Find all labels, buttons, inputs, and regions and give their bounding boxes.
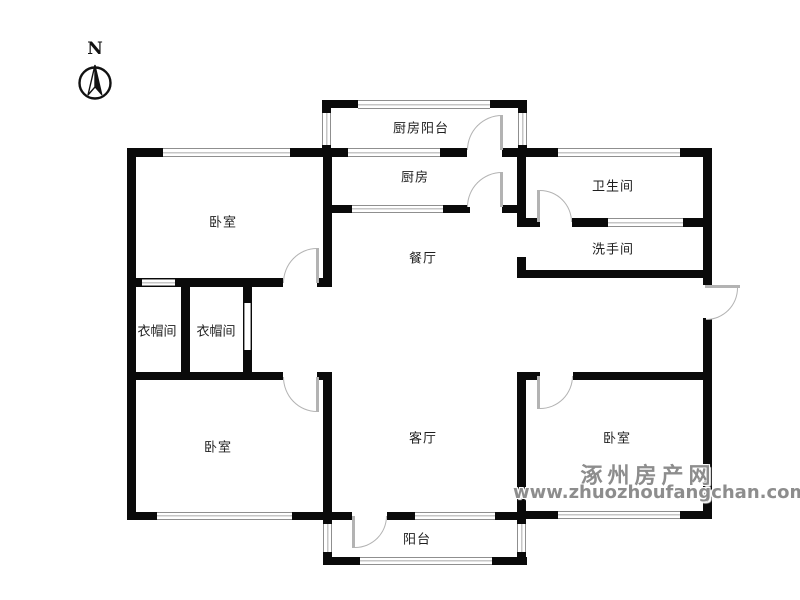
- room-label-dining: 餐厅: [409, 248, 437, 267]
- wall: [572, 218, 608, 227]
- window: [517, 524, 526, 552]
- window: [348, 148, 440, 157]
- window: [352, 205, 443, 213]
- door-arc: [283, 248, 317, 283]
- floor-plan: N: [0, 0, 800, 600]
- wall: [517, 148, 526, 227]
- door-arc: [540, 376, 573, 409]
- window: [157, 512, 292, 520]
- room-label-bedroom-bottom-right: 卧室: [603, 428, 631, 447]
- window: [415, 512, 495, 520]
- wall: [517, 257, 526, 278]
- window: [358, 100, 490, 109]
- window: [360, 557, 492, 565]
- wall: [703, 148, 712, 285]
- wall: [127, 372, 283, 380]
- watermark-url: www.zhuozhoufangchan.com: [513, 482, 783, 503]
- window: [142, 279, 175, 286]
- room-label-bedroom-top-left: 卧室: [209, 212, 237, 231]
- room-label-kitchen: 厨房: [401, 167, 429, 186]
- north-arrow-icon: [75, 56, 115, 106]
- window: [322, 113, 331, 145]
- window: [518, 113, 527, 145]
- window: [608, 218, 683, 227]
- door-arc: [467, 172, 502, 207]
- door-leaf: [537, 376, 540, 409]
- wall: [443, 205, 470, 213]
- door-arc: [283, 377, 317, 412]
- wall: [502, 148, 558, 157]
- room-label-balcony: 阳台: [403, 529, 431, 548]
- door-arc: [467, 115, 502, 150]
- wall: [502, 205, 518, 213]
- door-leaf: [352, 516, 355, 548]
- room-label-living: 客厅: [409, 428, 437, 447]
- wall: [323, 148, 332, 287]
- door-arc: [355, 516, 387, 548]
- door-leaf: [316, 377, 319, 412]
- wall: [332, 512, 352, 520]
- wall: [517, 270, 712, 278]
- door-leaf: [537, 190, 540, 222]
- door-leaf: [316, 248, 319, 283]
- room-label-cloakroom-left: 衣帽间: [137, 321, 176, 340]
- window: [558, 148, 680, 157]
- wall: [290, 148, 348, 157]
- wall: [573, 372, 712, 380]
- window: [558, 511, 680, 519]
- wall: [495, 512, 517, 520]
- door-leaf: [705, 285, 740, 288]
- room-label-cloakroom-right: 衣帽间: [196, 321, 235, 340]
- room-label-kitchen-balcony: 厨房阳台: [393, 118, 449, 137]
- wall: [332, 205, 352, 213]
- window: [323, 524, 332, 552]
- room-label-bedroom-bottom-left: 卧室: [204, 437, 232, 456]
- wall: [323, 372, 332, 520]
- wall: [181, 287, 190, 372]
- door-arc: [540, 190, 572, 222]
- wall: [127, 148, 136, 520]
- entrance-door-arc: [706, 288, 738, 320]
- door-leaf: [500, 172, 503, 207]
- wall: [440, 148, 467, 157]
- sliding-door: [244, 303, 251, 350]
- room-label-bathroom: 卫生间: [592, 176, 634, 195]
- room-label-washroom: 洗手间: [592, 239, 634, 258]
- door-leaf: [500, 115, 503, 150]
- window: [163, 148, 290, 157]
- wall: [387, 512, 415, 520]
